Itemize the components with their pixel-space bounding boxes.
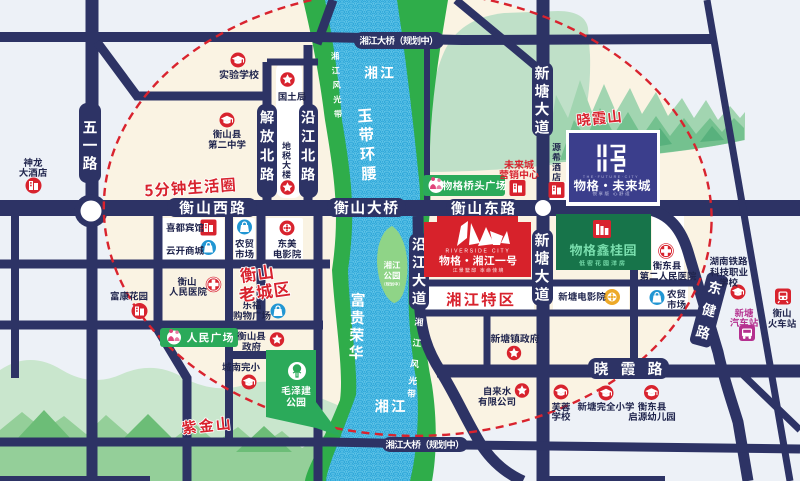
svg-text:RIVERSIDE CITY: RIVERSIDE CITY xyxy=(446,249,511,255)
svg-text:THE·FUTURE·CITY: THE·FUTURE·CITY xyxy=(583,175,639,179)
